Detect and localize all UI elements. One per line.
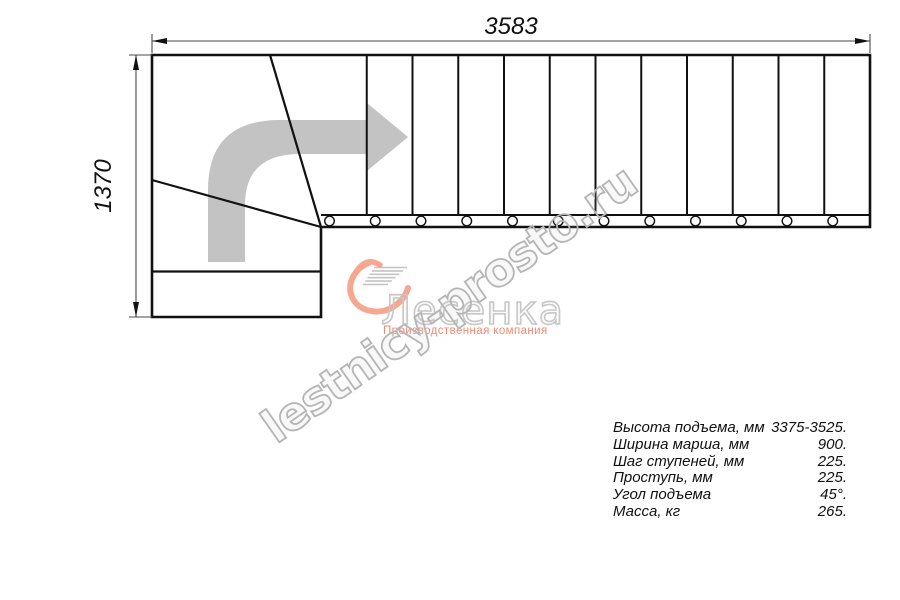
tread-circles <box>325 216 838 226</box>
spec-row: Угол подъема45°. <box>613 487 847 504</box>
arrowhead-down-icon <box>133 302 139 317</box>
spec-label: Масса, кг <box>613 504 680 521</box>
tread-fixing-circle <box>325 216 335 226</box>
tread-fixing-circle <box>645 216 655 226</box>
tread-fixing-circle <box>416 216 426 226</box>
spec-label: Угол подъема <box>613 487 711 504</box>
logo-tagline: Производственная компания <box>383 325 548 337</box>
spec-row: Ширина марша, мм900. <box>613 437 847 454</box>
speed-lines <box>363 268 407 285</box>
arrowhead-up-icon <box>133 55 139 70</box>
stair-outline <box>152 55 870 317</box>
tread-fixing-circle <box>782 216 792 226</box>
spec-value: 3375-3525. <box>771 420 847 437</box>
spec-label: Высота подъема, мм <box>613 420 765 437</box>
tread-fixing-circle <box>599 216 609 226</box>
arrowhead-left-icon <box>152 38 167 44</box>
tread-fixing-circle <box>736 216 746 226</box>
tread-fixing-circle <box>508 216 518 226</box>
drawing-canvas: 3583 1370 Лесенка Производственная компа… <box>0 0 900 600</box>
spec-row: Шаг ступеней, мм225. <box>613 454 847 471</box>
step-lines <box>367 55 825 215</box>
tread-fixing-circle <box>553 216 563 226</box>
spec-label: Ширина марша, мм <box>613 437 749 454</box>
spec-label: Шаг ступеней, мм <box>613 454 744 471</box>
spec-value: 225. <box>818 470 847 487</box>
stair-linework <box>152 55 870 317</box>
tread-fixing-circle <box>828 216 838 226</box>
tread-fixing-circle <box>691 216 701 226</box>
tread-fixing-circle <box>462 216 472 226</box>
spec-value: 900. <box>818 437 847 454</box>
left-dimension-value: 1370 <box>90 159 117 213</box>
arrowhead-right-icon <box>855 38 870 44</box>
spec-row: Проступь, мм225. <box>613 470 847 487</box>
top-dimension-value: 3583 <box>484 13 538 40</box>
spec-row: Масса, кг265. <box>613 504 847 521</box>
tread-fixing-circle <box>370 216 380 226</box>
spec-table: Высота подъема, мм3375-3525.Ширина марша… <box>613 420 847 521</box>
spec-value: 225. <box>818 454 847 471</box>
spec-value: 45°. <box>820 487 847 504</box>
spec-label: Проступь, мм <box>613 470 713 487</box>
spec-row: Высота подъема, мм3375-3525. <box>613 420 847 437</box>
spec-value: 265. <box>818 504 847 521</box>
